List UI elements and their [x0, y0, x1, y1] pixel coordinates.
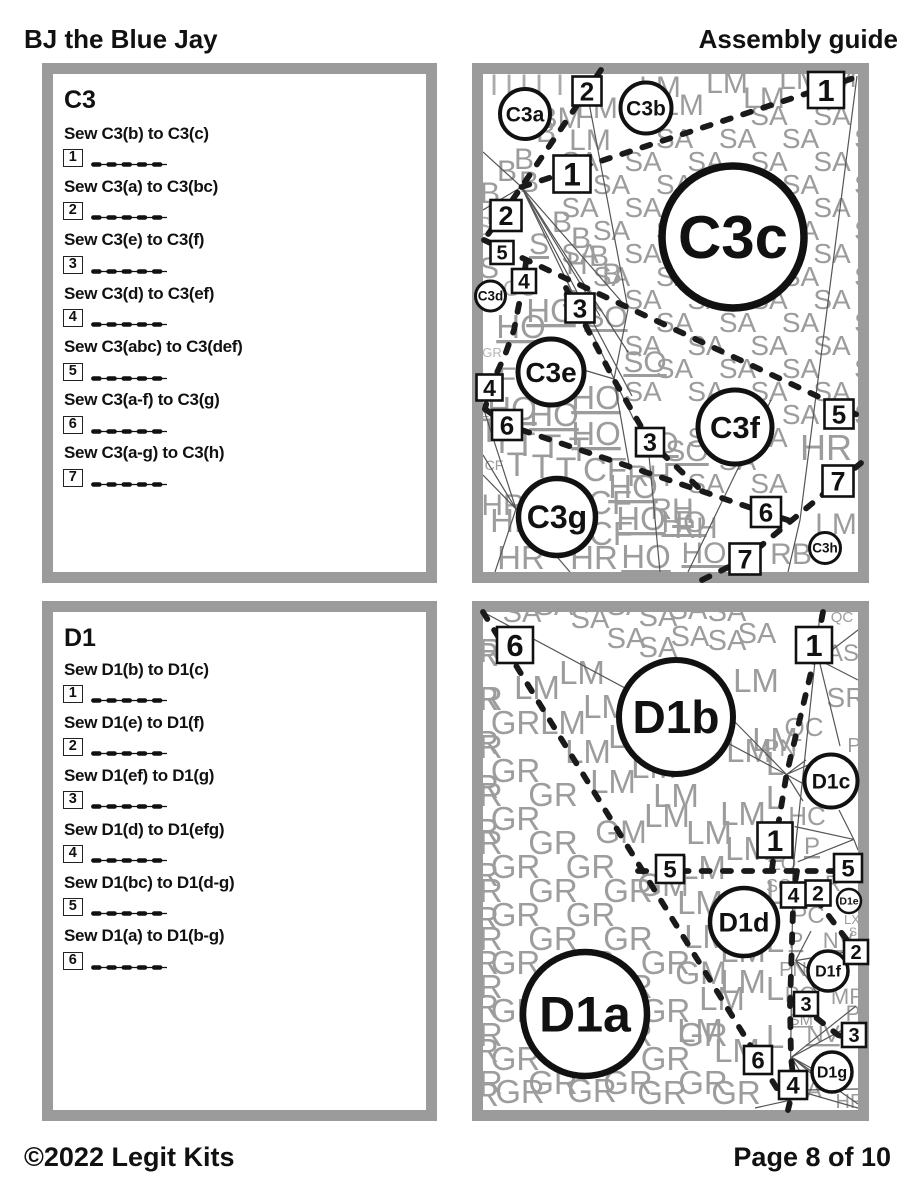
svg-text:H: H: [672, 497, 694, 530]
svg-text:D1a: D1a: [539, 987, 632, 1043]
svg-text:C3c: C3c: [678, 204, 788, 271]
svg-text:6: 6: [500, 410, 514, 440]
svg-text:GR: GR: [711, 1074, 761, 1111]
svg-text:SA: SA: [750, 468, 788, 499]
svg-text:T: T: [507, 446, 528, 484]
svg-text:SA: SA: [571, 603, 610, 635]
svg-text:C3f: C3f: [710, 410, 761, 445]
svg-text:C3b: C3b: [626, 97, 666, 120]
svg-text:SA: SA: [671, 621, 710, 653]
svg-text:6: 6: [506, 628, 523, 663]
svg-text:6: 6: [751, 1048, 764, 1075]
svg-text:R: R: [475, 812, 499, 849]
svg-text:2: 2: [580, 76, 594, 106]
svg-text:R: R: [475, 988, 499, 1025]
svg-text:C3g: C3g: [527, 499, 587, 535]
svg-text:GR: GR: [637, 1074, 687, 1111]
svg-text:GR: GR: [482, 345, 502, 360]
svg-text:6: 6: [759, 497, 773, 527]
svg-text:4: 4: [518, 271, 530, 294]
svg-text:C3d: C3d: [478, 289, 504, 304]
svg-text:P: P: [847, 735, 860, 757]
svg-text:3: 3: [573, 293, 587, 323]
svg-text:QC: QC: [831, 609, 854, 626]
svg-text:R: R: [475, 1076, 499, 1113]
svg-text:3: 3: [800, 994, 811, 1016]
svg-text:S: S: [854, 307, 873, 338]
svg-text:LM: LM: [733, 662, 779, 699]
svg-text:SO: SO: [623, 346, 666, 379]
svg-text:S: S: [854, 353, 873, 384]
svg-text:R: R: [475, 768, 499, 805]
svg-text:R: R: [475, 724, 499, 761]
svg-text:7: 7: [737, 545, 752, 575]
svg-text:5: 5: [496, 243, 507, 265]
svg-text:I: I: [556, 69, 564, 102]
svg-text:1: 1: [563, 157, 581, 193]
svg-text:5: 5: [841, 856, 854, 883]
svg-text:D1c: D1c: [812, 770, 851, 793]
svg-text:SR: SR: [827, 682, 866, 713]
svg-text:D1d: D1d: [718, 908, 769, 938]
svg-text:R: R: [475, 1032, 499, 1069]
svg-text:R: R: [475, 680, 499, 717]
svg-text:D1e: D1e: [839, 896, 858, 908]
svg-text:4: 4: [788, 885, 800, 908]
svg-text:HR: HR: [836, 1091, 865, 1113]
svg-text:LM: LM: [706, 67, 748, 100]
svg-text:1: 1: [767, 825, 784, 858]
svg-text:R: R: [475, 900, 499, 937]
svg-text:SA: SA: [708, 625, 747, 657]
svg-text:7: 7: [830, 467, 845, 497]
svg-text:LM: LM: [644, 797, 690, 834]
svg-text:C3h: C3h: [812, 541, 838, 556]
svg-text:2: 2: [812, 883, 824, 906]
svg-text:D1f: D1f: [815, 964, 841, 981]
svg-text:2: 2: [498, 201, 513, 231]
svg-text:RB: RB: [770, 538, 812, 571]
svg-text:D1b: D1b: [633, 691, 720, 743]
svg-text:H: H: [566, 248, 588, 281]
svg-text:C3a: C3a: [506, 103, 545, 126]
svg-text:I: I: [475, 69, 483, 102]
svg-text:S: S: [854, 261, 873, 292]
svg-text:I: I: [490, 69, 498, 102]
svg-text:S: S: [854, 169, 873, 200]
svg-text:L: L: [766, 970, 784, 1007]
svg-text:S: S: [854, 123, 873, 154]
svg-text:1: 1: [805, 628, 822, 663]
svg-text:GR: GR: [495, 1073, 545, 1110]
svg-text:3: 3: [643, 429, 657, 457]
svg-text:R: R: [475, 856, 499, 893]
svg-text:5: 5: [832, 399, 846, 429]
svg-text:S: S: [854, 215, 873, 246]
svg-text:D1g: D1g: [817, 1065, 847, 1082]
svg-text:4: 4: [483, 375, 496, 401]
svg-text:R: R: [475, 944, 499, 981]
svg-text:1: 1: [817, 73, 834, 108]
svg-text:SA: SA: [535, 590, 574, 622]
svg-text:R: R: [475, 636, 499, 673]
svg-text:4: 4: [786, 1073, 800, 1100]
svg-text:5: 5: [663, 857, 676, 884]
svg-text:C3e: C3e: [525, 357, 576, 388]
svg-text:2: 2: [850, 942, 861, 964]
svg-text:3: 3: [848, 1025, 859, 1047]
svg-text:LM: LM: [559, 654, 605, 691]
